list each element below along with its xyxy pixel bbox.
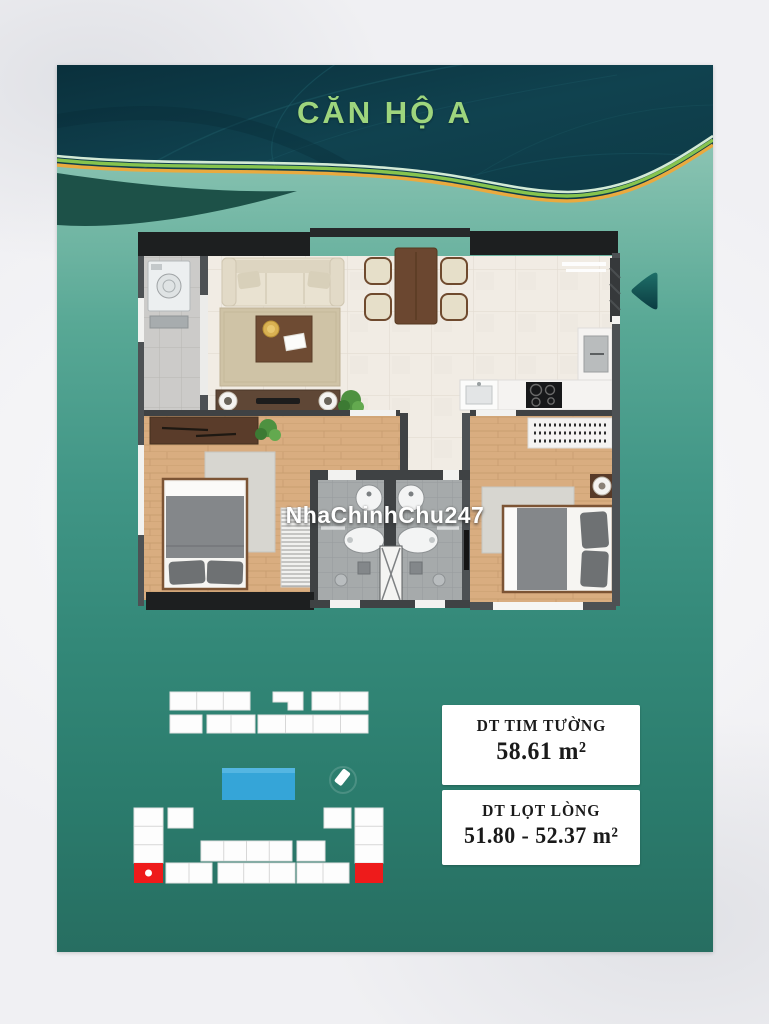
site-block [355,808,383,863]
site-block [168,808,193,828]
entrance-arrow-icon [629,271,659,311]
wave-underlayer [57,173,297,226]
site-block [170,715,202,733]
site-plan [130,685,390,885]
bathroom-2 [396,480,462,600]
area-box-label: DT LỌT LÒNG [482,801,600,821]
unit-highlight-dot [145,870,152,877]
site-block [297,841,325,861]
watermark: NhaChinhChu247 [57,502,713,529]
floor-plan [138,228,630,618]
area-box-label: DT TIM TƯỜNG [476,716,606,736]
area-box-value: 51.80 - 52.37 m² [464,823,618,849]
corridor-floor [400,412,470,476]
site-block [134,808,163,863]
unit-highlight-right [355,863,383,883]
site-block [170,692,250,710]
balcony [144,256,200,412]
area-box-lot-long: DT LỌT LÒNG 51.80 - 52.37 m² [442,790,640,865]
site-block [273,692,303,710]
site-block [324,808,351,828]
bathroom-1 [318,480,384,600]
page-title: CĂN HỘ A [57,95,713,131]
slide-marker [334,768,351,786]
area-box-value: 58.61 m² [496,738,586,766]
flyer-card: CĂN HỘ A [57,65,713,952]
area-box-tim-tuong: DT TIM TƯỜNG 58.61 m² [442,705,640,785]
site-block [218,863,295,883]
